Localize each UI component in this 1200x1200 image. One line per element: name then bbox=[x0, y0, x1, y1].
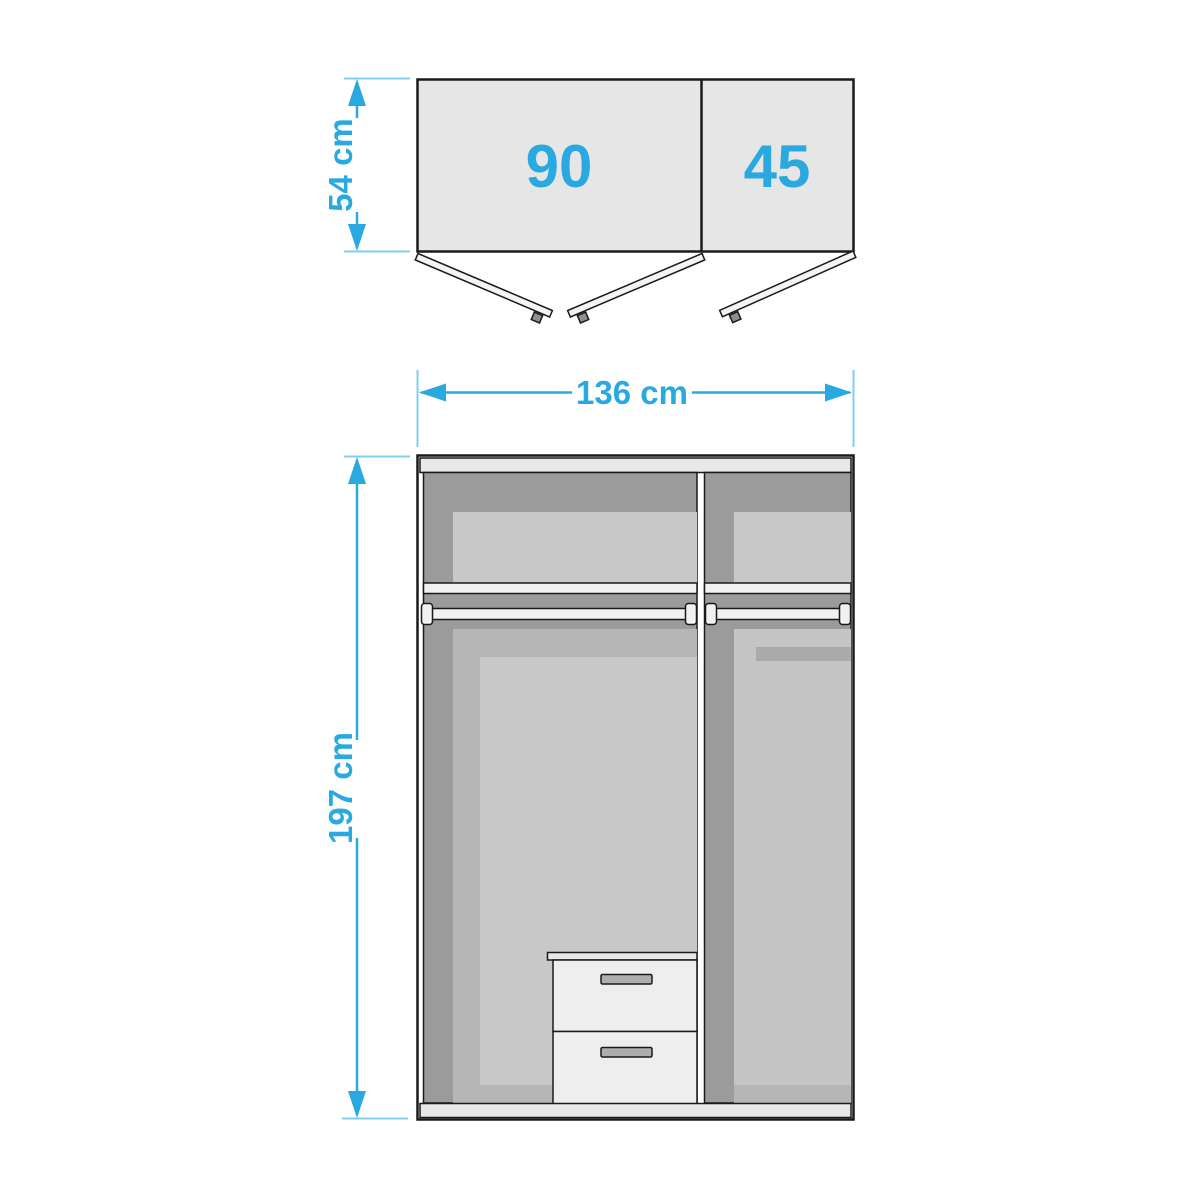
left-door-width-label: 90 bbox=[526, 133, 593, 200]
height-dimension-label: 197 cm bbox=[322, 732, 359, 844]
rod-bar bbox=[432, 609, 688, 620]
rod-bar bbox=[716, 609, 840, 620]
arrow-down-icon bbox=[348, 224, 366, 251]
depth-dimension-label: 54 cm bbox=[322, 118, 359, 212]
arrow-left-icon bbox=[419, 384, 446, 402]
drawer-front bbox=[553, 1032, 697, 1105]
width-dimension: 136 cm bbox=[418, 370, 854, 447]
rod-end-cap bbox=[840, 604, 851, 625]
drawer-handle bbox=[601, 975, 652, 985]
drawer-front bbox=[553, 960, 697, 1032]
upper-cubby-inset bbox=[453, 512, 697, 583]
door-leaf bbox=[415, 254, 552, 317]
right-compartment bbox=[705, 473, 852, 1104]
top-panel-strip bbox=[420, 458, 851, 473]
shelf bbox=[705, 583, 852, 594]
front-view bbox=[418, 456, 854, 1120]
diagram-vector-layer: 90 45 54 cm 136 cm bbox=[0, 0, 1200, 1200]
depth-dimension: 54 cm bbox=[322, 79, 410, 252]
arrow-right-icon bbox=[825, 384, 852, 402]
right-door-width-label: 45 bbox=[744, 133, 811, 200]
wardrobe-dimension-diagram: 90 45 54 cm 136 cm bbox=[0, 0, 1200, 1200]
arrow-up-icon bbox=[348, 457, 366, 484]
hanging-area-bottom-band bbox=[734, 1085, 851, 1103]
arrow-down-icon bbox=[348, 1091, 366, 1118]
hanging-area-inset bbox=[734, 629, 851, 1103]
shelf bbox=[424, 583, 698, 594]
open-door-middle bbox=[568, 254, 709, 326]
drawer-unit bbox=[548, 953, 698, 1105]
width-dimension-label: 136 cm bbox=[576, 374, 688, 411]
upper-cubby-inset bbox=[734, 512, 851, 583]
rod-end-cap bbox=[686, 604, 697, 625]
height-dimension: 197 cm bbox=[322, 457, 410, 1119]
rod-end-cap bbox=[706, 604, 717, 625]
door-leaf bbox=[568, 254, 705, 317]
drawer-handle bbox=[601, 1048, 652, 1058]
arrow-up-icon bbox=[348, 79, 366, 106]
bottom-plinth bbox=[420, 1104, 851, 1118]
hanging-area-shadow-band bbox=[756, 647, 851, 661]
top-view: 90 45 bbox=[412, 80, 860, 326]
open-door-right bbox=[720, 251, 860, 325]
drawer-top-board bbox=[548, 953, 698, 961]
door-leaf bbox=[720, 251, 856, 317]
open-door-left bbox=[412, 254, 553, 326]
rod-end-cap bbox=[422, 604, 433, 625]
